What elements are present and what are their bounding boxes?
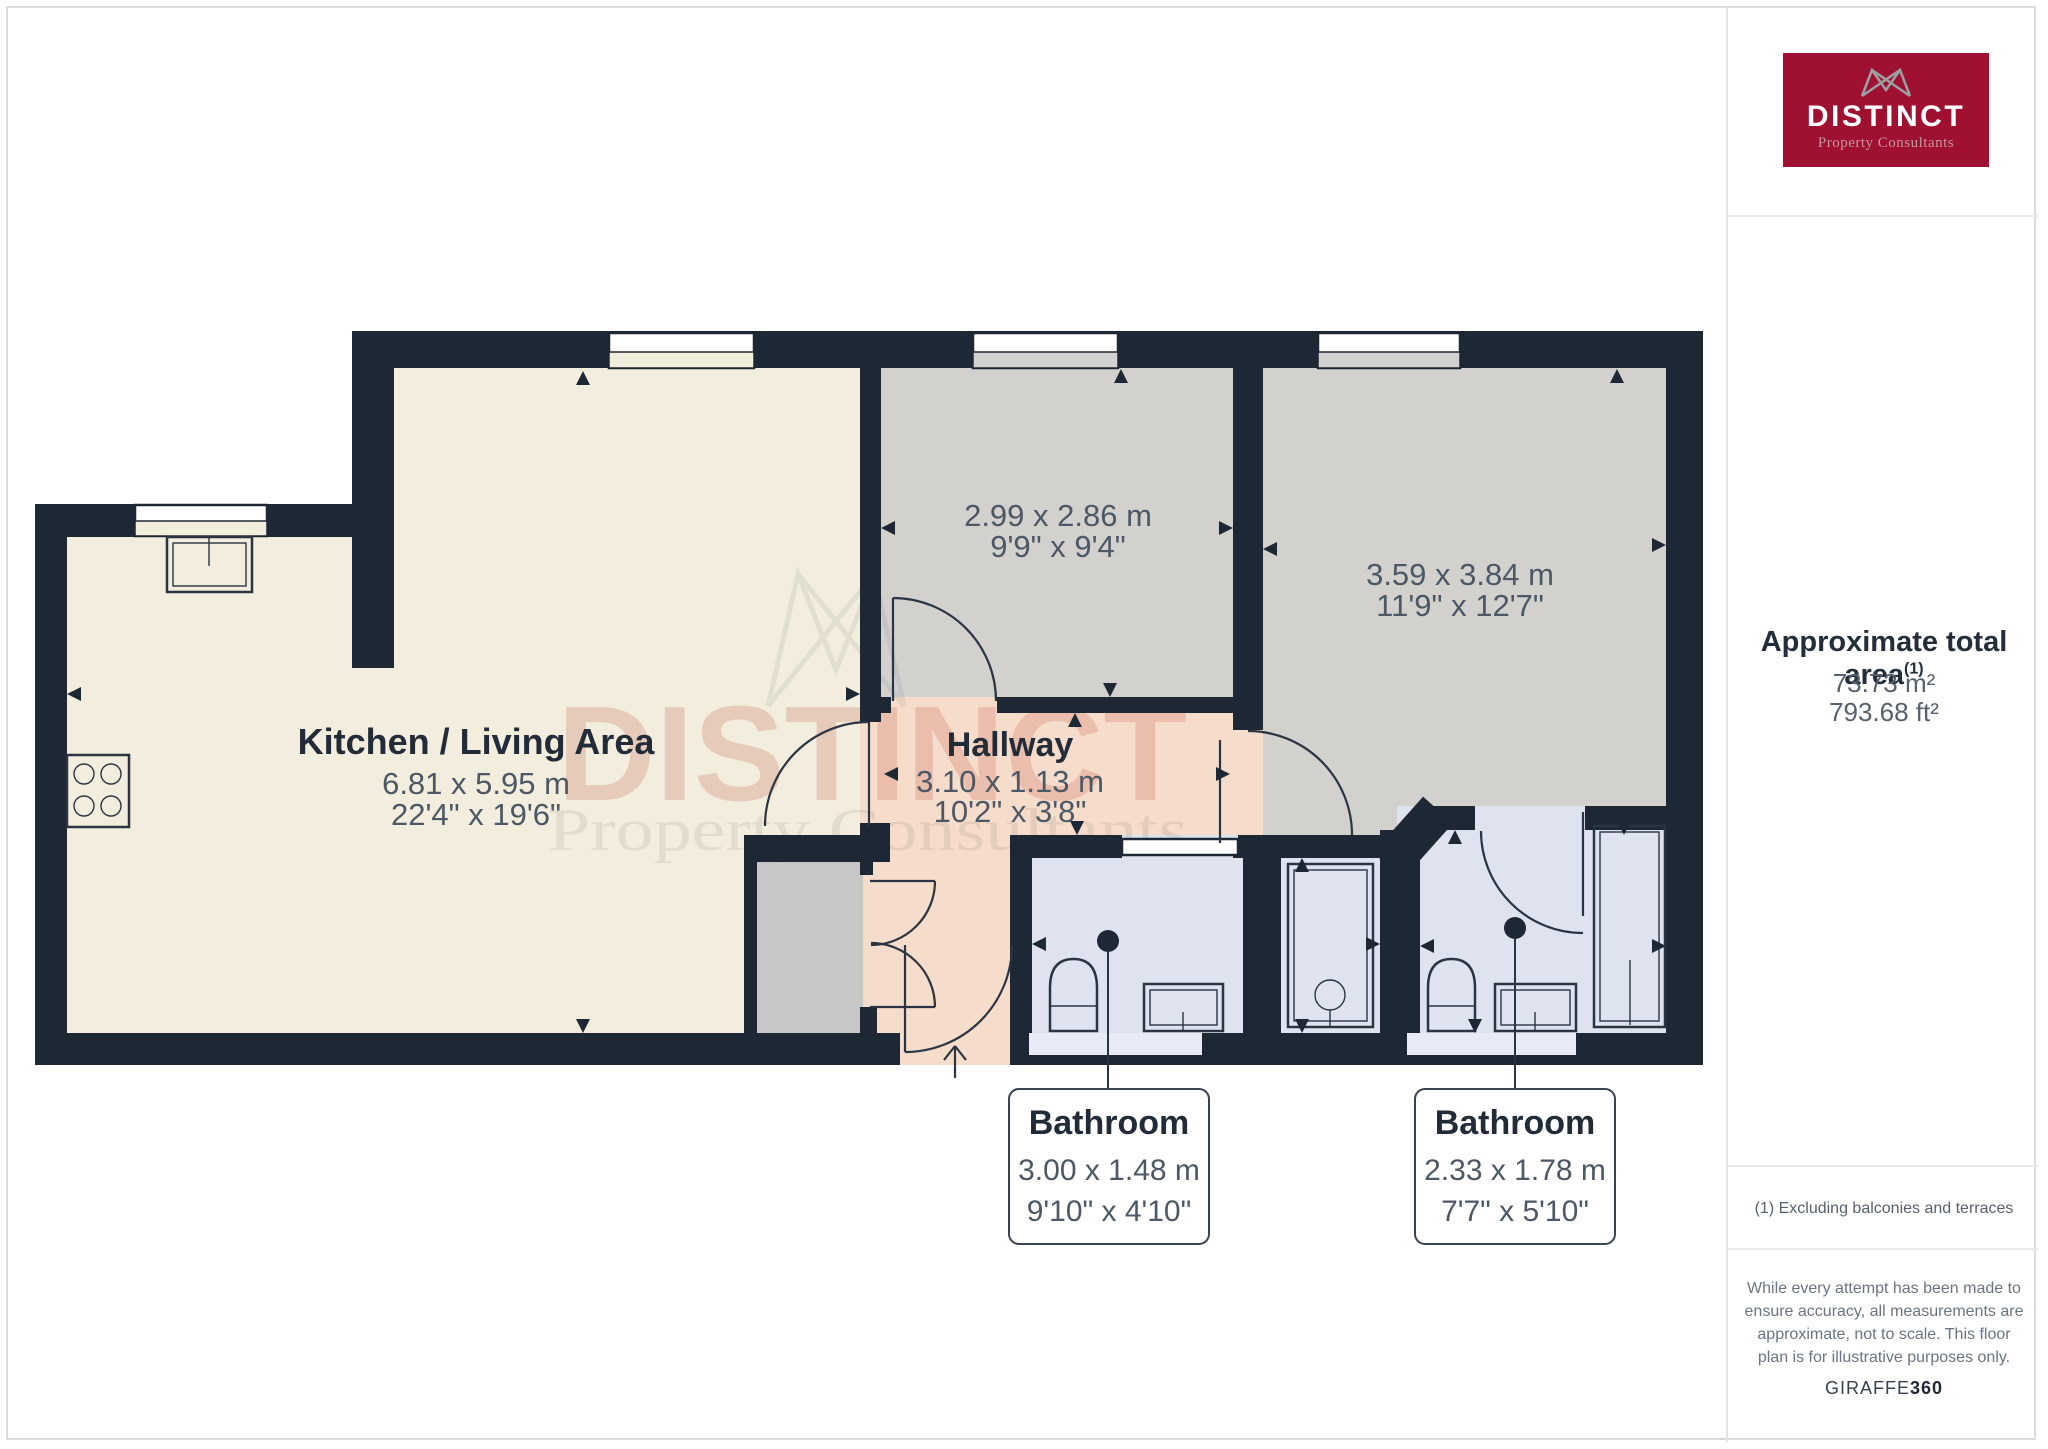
total-area-ft2: 793.68 ft² xyxy=(1728,697,2040,728)
giraffe360-brand: GIRAFFE360 xyxy=(1728,1378,2040,1399)
total-area-m2: 73.73 m² xyxy=(1728,668,2040,699)
bathroom2-dim-imperial: 7'7" x 5'10" xyxy=(1441,1195,1589,1228)
window-icon xyxy=(135,505,267,536)
logo-title: DISTINCT xyxy=(1807,102,1965,132)
disclaimer-line: approximate, not to scale. This floor xyxy=(1728,1323,2040,1346)
bathroom1-dim-imperial: 9'10" x 4'10" xyxy=(1027,1195,1192,1228)
disclaimer-line: While every attempt has been made to xyxy=(1728,1277,2040,1300)
hallway-label: Hallway xyxy=(947,726,1074,764)
bedroom2-dim-metric: 3.59 x 3.84 m xyxy=(1366,557,1554,592)
bedroom1-dim-metric: 2.99 x 2.86 m xyxy=(964,498,1152,533)
room-kitchen-floor-left xyxy=(35,504,365,1033)
room-bathroom2-floor xyxy=(1397,806,1703,1033)
bathroom1-label: Bathroom xyxy=(1029,1104,1190,1142)
disclaimer-line: ensure accuracy, all measurements are xyxy=(1728,1300,2040,1323)
bedroom2-dim-imperial: 11'9" x 12'7" xyxy=(1376,588,1544,623)
callout-anchor-dot xyxy=(1504,917,1526,939)
bedroom1-dim-imperial: 9'9" x 9'4" xyxy=(990,529,1126,564)
window-icon xyxy=(973,333,1118,368)
room-vestibule-floor xyxy=(860,835,1012,1065)
floorplan-page: DISTINCT Property Consultants xyxy=(0,0,2048,1449)
kitchen-dim-metric: 6.81 x 5.95 m xyxy=(382,766,570,801)
kitchen-dim-imperial: 22'4" x 19'6" xyxy=(391,797,561,832)
window-icon xyxy=(1318,333,1460,368)
bathroom2-label: Bathroom xyxy=(1435,1104,1596,1142)
room-closet-floor xyxy=(757,862,863,1033)
crown-icon xyxy=(1858,68,1914,98)
sidebar-section-divider xyxy=(1728,215,2038,217)
disclaimer-line: plan is for illustrative purposes only. xyxy=(1728,1346,2040,1369)
giraffe360-brand-regular: GIRAFFE xyxy=(1825,1378,1910,1398)
giraffe360-brand-bold: 360 xyxy=(1910,1378,1943,1398)
hallway-dim-imperial: 10'2" x 3'8" xyxy=(934,794,1087,829)
agency-logo: DISTINCT Property Consultants xyxy=(1783,53,1989,167)
logo-tagline: Property Consultants xyxy=(1818,135,1954,152)
window-icon xyxy=(609,333,754,368)
disclaimer-text: While every attempt has been made to ens… xyxy=(1728,1277,2040,1369)
callout-anchor-dot xyxy=(1097,930,1119,952)
bathroom2-dim-metric: 2.33 x 1.78 m xyxy=(1424,1154,1606,1187)
bathroom1-dim-metric: 3.00 x 1.48 m xyxy=(1018,1154,1200,1187)
sidebar-section-divider xyxy=(1728,1248,2038,1250)
sidebar-section-divider xyxy=(1728,1165,2038,1167)
kitchen-label: Kitchen / Living Area xyxy=(298,721,656,762)
area-footnote: (1) Excluding balconies and terraces xyxy=(1728,1200,2040,1218)
